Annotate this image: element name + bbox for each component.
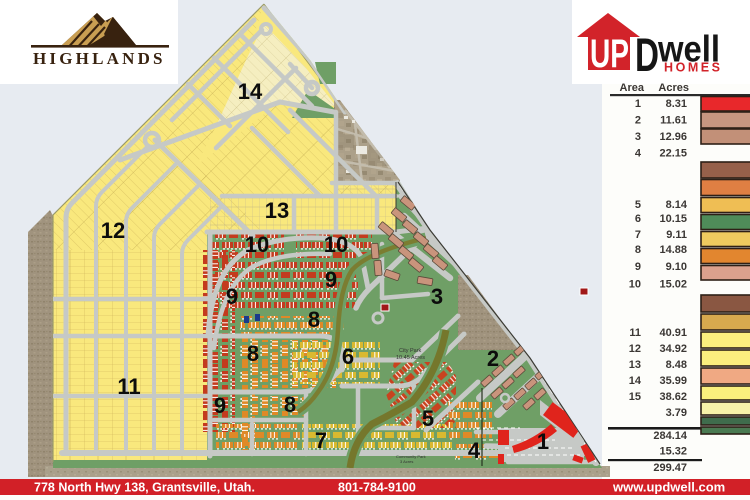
svg-text:284.14: 284.14 xyxy=(653,430,688,442)
svg-text:Area: Area xyxy=(620,82,645,94)
svg-text:1: 1 xyxy=(537,429,549,454)
svg-text:8: 8 xyxy=(284,392,296,417)
svg-text:8: 8 xyxy=(308,307,320,332)
svg-text:15: 15 xyxy=(629,391,641,403)
svg-text:8: 8 xyxy=(635,244,641,256)
svg-text:12: 12 xyxy=(629,343,641,355)
svg-text:8.31: 8.31 xyxy=(666,98,687,110)
svg-text:14: 14 xyxy=(629,375,642,387)
svg-text:14.88: 14.88 xyxy=(659,244,687,256)
svg-text:1: 1 xyxy=(635,98,641,110)
svg-text:11: 11 xyxy=(117,374,140,399)
svg-text:7: 7 xyxy=(635,229,641,241)
svg-text:8.48: 8.48 xyxy=(666,359,687,371)
svg-text:801-784-9100: 801-784-9100 xyxy=(338,481,416,495)
svg-text:9: 9 xyxy=(226,284,238,309)
svg-text:3.79: 3.79 xyxy=(666,407,687,419)
svg-text:10.45 Acres: 10.45 Acres xyxy=(396,355,425,361)
svg-text:38.62: 38.62 xyxy=(659,391,687,403)
svg-text:Acres: Acres xyxy=(658,82,689,94)
svg-text:D: D xyxy=(635,28,659,81)
svg-text:2: 2 xyxy=(635,115,641,127)
svg-text:www.updwell.com: www.updwell.com xyxy=(612,480,725,495)
svg-text:4: 4 xyxy=(468,438,481,463)
svg-text:HOMES: HOMES xyxy=(664,61,720,75)
svg-text:10: 10 xyxy=(629,279,641,291)
svg-text:9: 9 xyxy=(635,261,641,273)
svg-text:City Park: City Park xyxy=(399,348,422,354)
svg-text:UP: UP xyxy=(590,32,629,76)
svg-text:9.11: 9.11 xyxy=(666,229,687,241)
svg-text:5: 5 xyxy=(422,406,434,431)
svg-text:12: 12 xyxy=(101,218,125,243)
svg-text:13: 13 xyxy=(265,198,289,223)
svg-text:7: 7 xyxy=(315,428,327,453)
svg-text:6: 6 xyxy=(342,344,354,369)
svg-text:11.61: 11.61 xyxy=(660,115,687,127)
svg-text:15.02: 15.02 xyxy=(659,279,687,291)
svg-text:40.91: 40.91 xyxy=(659,327,687,339)
svg-text:15.32: 15.32 xyxy=(659,446,687,458)
svg-text:3 Acres: 3 Acres xyxy=(400,459,413,464)
svg-text:4: 4 xyxy=(635,148,642,160)
svg-text:HIGHLANDS: HIGHLANDS xyxy=(33,49,166,68)
svg-text:11: 11 xyxy=(629,327,641,339)
svg-text:8: 8 xyxy=(247,341,259,366)
svg-text:9.10: 9.10 xyxy=(666,261,687,273)
svg-text:10: 10 xyxy=(245,232,269,257)
svg-text:5: 5 xyxy=(635,199,641,211)
svg-text:10: 10 xyxy=(324,232,348,257)
svg-text:3: 3 xyxy=(431,284,443,309)
svg-text:35.99: 35.99 xyxy=(659,375,687,387)
svg-text:6: 6 xyxy=(635,213,641,225)
svg-text:34.92: 34.92 xyxy=(659,343,687,355)
svg-text:13: 13 xyxy=(629,359,641,371)
svg-text:2: 2 xyxy=(487,346,499,371)
svg-text:3: 3 xyxy=(635,131,641,143)
svg-text:9: 9 xyxy=(325,267,337,292)
svg-text:778 North Hwy 138, Grantsville: 778 North Hwy 138, Grantsville, Utah. xyxy=(34,481,255,495)
svg-text:10.15: 10.15 xyxy=(659,213,687,225)
svg-text:22.15: 22.15 xyxy=(659,148,687,160)
svg-text:14: 14 xyxy=(238,79,263,104)
svg-text:12.96: 12.96 xyxy=(659,131,687,143)
svg-text:299.47: 299.47 xyxy=(653,462,687,474)
svg-text:9: 9 xyxy=(214,393,226,418)
svg-text:8.14: 8.14 xyxy=(666,199,688,211)
